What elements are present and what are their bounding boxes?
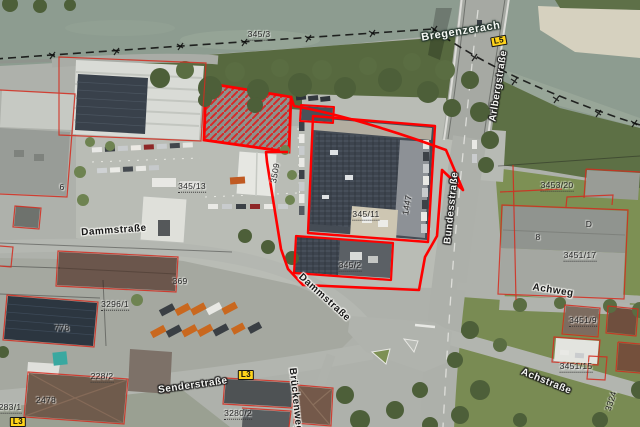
aerial-imagery [0, 0, 640, 427]
map-canvas[interactable]: BregenzerachArlbergstraßeBundesstraßeDam… [0, 0, 640, 427]
